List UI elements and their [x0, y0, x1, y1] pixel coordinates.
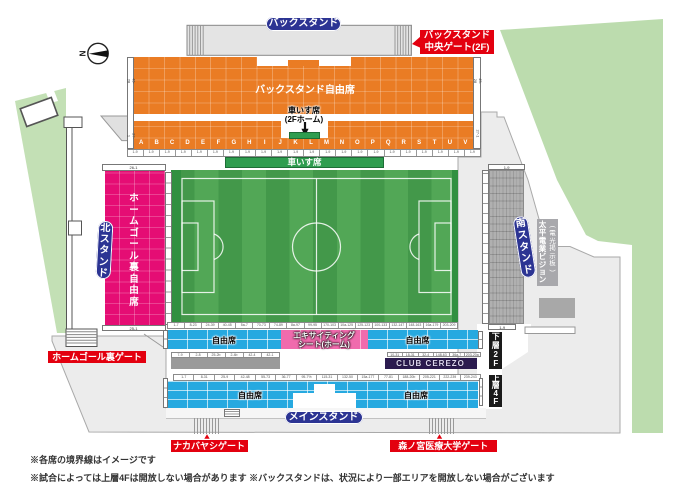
svg-text:N: N — [78, 50, 87, 56]
